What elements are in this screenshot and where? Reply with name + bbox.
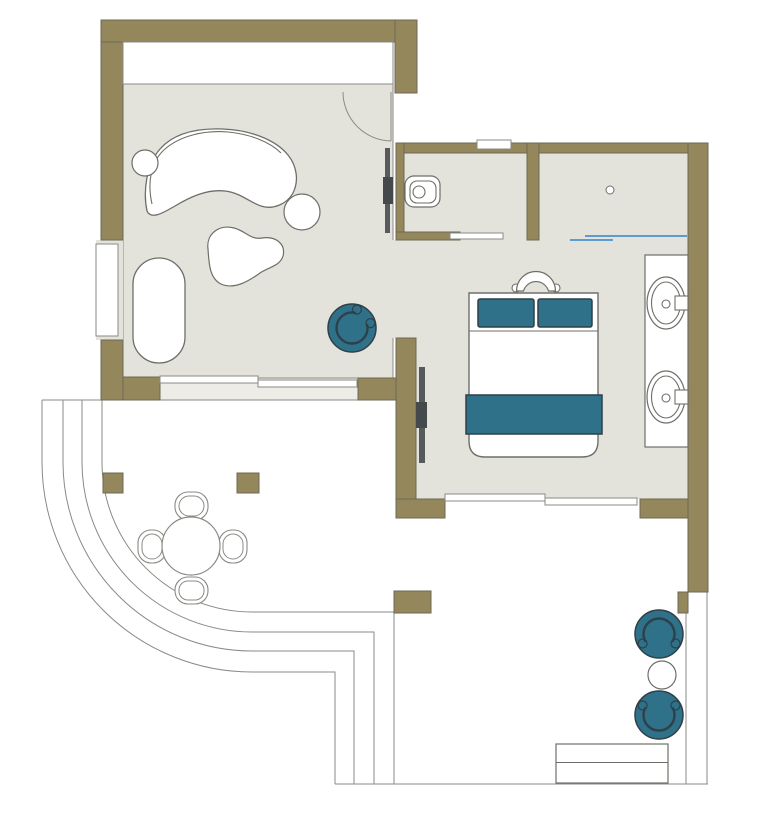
wall-wc-left [396, 143, 404, 240]
wall-shower-partition [527, 143, 539, 240]
bedroom-slider-panel-1 [445, 494, 545, 501]
terrace-edge-line-2 [82, 400, 374, 784]
wall-bath-top [397, 143, 708, 153]
floor-plan-svg [0, 0, 768, 818]
terrace-edge-line-1 [102, 400, 394, 784]
toilet-seat [410, 181, 436, 203]
living-slider-panel-2 [258, 380, 357, 387]
floor-plan [0, 0, 768, 818]
bed-pillow-left [478, 299, 534, 327]
wall-living-left-lower [101, 340, 123, 400]
wall-living-bottom-mid [358, 378, 396, 400]
bed-runner-blanket [466, 395, 602, 434]
entry-threshold [396, 90, 417, 143]
wall-living-left-upper [101, 42, 123, 240]
sink-1-drain [662, 300, 670, 308]
west-window [96, 244, 118, 336]
sink-1-faucet [675, 296, 688, 310]
bedroom-slider-panel-2 [545, 498, 637, 505]
armchair-living-seat [328, 304, 376, 352]
wall-bedroom-bottom-left [396, 499, 445, 518]
lounge-chair-2-seat [635, 691, 683, 739]
daybed [133, 258, 185, 363]
wardrobe-band [123, 42, 393, 84]
bed-pillow-right [538, 299, 592, 327]
patio-chair-west-seat [142, 534, 162, 559]
patio-table [162, 517, 220, 575]
terrace-pillar-3 [394, 591, 431, 613]
side-table-small [132, 150, 158, 176]
patio-chair-east-seat [223, 534, 243, 559]
terrace-pillar-1 [103, 473, 123, 493]
sink-2-drain [662, 394, 670, 402]
patio-chair-north-seat [179, 496, 204, 516]
sink-2-faucet [675, 390, 688, 404]
side-table-round [284, 194, 320, 230]
terrace-side-table [648, 661, 676, 689]
wall-living-top [101, 20, 417, 42]
wall-outer-right [688, 143, 708, 592]
patio-chair-south-seat [179, 581, 204, 600]
shower-drain [606, 186, 614, 194]
lounge-chair-1-seat [635, 610, 683, 658]
wall-bedroom-bottom-right [640, 499, 688, 518]
wall-right-foot [678, 592, 688, 613]
wc-slider-panel [450, 233, 503, 239]
wc-pocket-door-handle [383, 177, 393, 204]
terrace-bench [556, 744, 668, 783]
north-wall-window [477, 140, 511, 149]
bedroom-pocket-door-handle [416, 402, 427, 428]
living-slider-panel-1 [160, 376, 258, 383]
wall-living-bottom-left [123, 377, 160, 400]
wall-bedroom-divider [396, 338, 416, 500]
wall-entry-block [395, 20, 417, 93]
terrace-pillar-2 [237, 473, 259, 493]
